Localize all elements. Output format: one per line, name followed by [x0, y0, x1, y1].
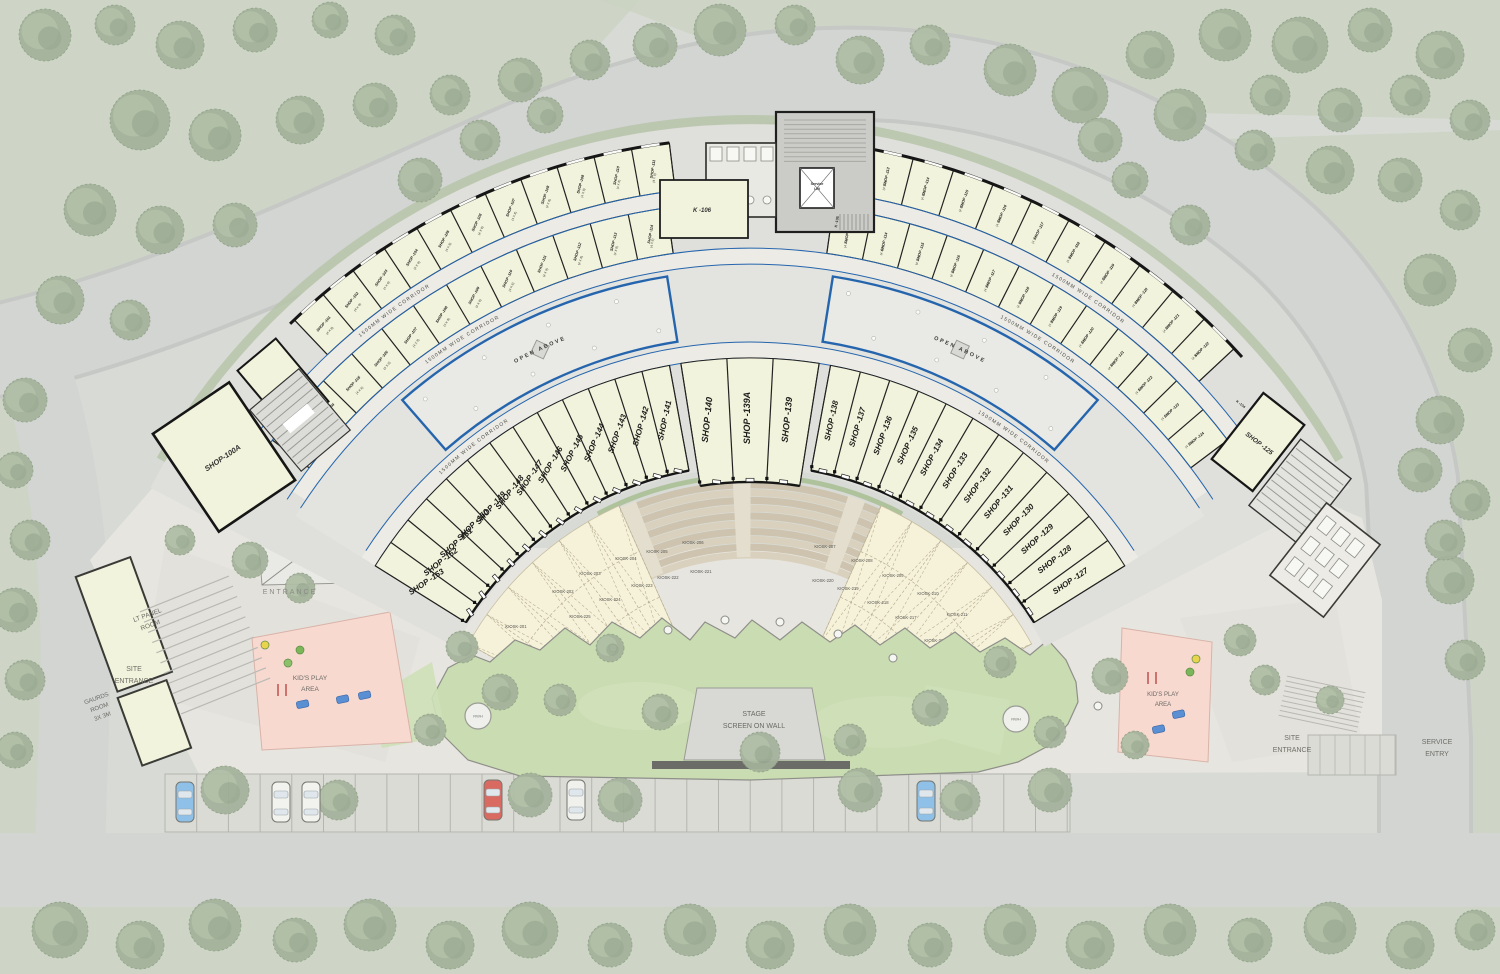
site-entrance-label: ENTRANCE	[115, 678, 154, 685]
kiosk-label: KIOSK-205	[646, 549, 668, 554]
tree-icon	[460, 120, 500, 160]
tree-icon	[984, 904, 1036, 956]
tree-icon	[353, 83, 397, 127]
column-mark	[993, 563, 996, 566]
tree-icon	[32, 902, 88, 958]
tree-canopy	[683, 921, 706, 944]
court-furniture	[994, 388, 998, 392]
tree-icon	[1386, 921, 1434, 969]
tree-icon	[1028, 768, 1072, 812]
car-icon	[176, 782, 194, 822]
tree-canopy	[585, 53, 603, 71]
tree-icon	[1416, 396, 1464, 444]
plaza-light	[889, 654, 897, 662]
kids-play-label: AREA	[301, 686, 319, 693]
tree-canopy	[363, 916, 386, 939]
tree-canopy	[249, 23, 269, 43]
column-mark	[698, 480, 701, 483]
tree-icon	[5, 660, 45, 700]
site-plan-drawing: KIOSK-201KIOSK-202KIOSK-203KIOSK-204KIOS…	[0, 0, 1500, 974]
kiosk-label: KIOSK-218	[867, 600, 889, 605]
stage-label: SCREEN ON WALL	[723, 723, 785, 730]
tree-icon	[213, 203, 257, 247]
tree-canopy	[1423, 271, 1446, 294]
car-body	[917, 781, 935, 821]
tree-icon	[426, 921, 474, 969]
tree-icon	[233, 8, 277, 52]
column-mark	[461, 619, 464, 622]
tree-icon	[1306, 146, 1354, 194]
kiosk-label: KIOSK-209	[882, 573, 904, 578]
tree-canopy	[764, 937, 786, 959]
tree-icon	[912, 690, 948, 726]
tree-canopy	[1405, 88, 1423, 106]
plaza-light	[721, 616, 729, 624]
tree-icon	[1112, 162, 1148, 198]
toilet-stall	[727, 147, 739, 161]
tree-icon	[694, 4, 746, 56]
tree-canopy	[1125, 174, 1141, 190]
tree-icon	[375, 15, 415, 55]
play-equipment-icon	[261, 641, 269, 649]
tree-canopy	[110, 18, 128, 36]
tree-canopy	[1044, 783, 1064, 803]
tree-canopy	[444, 937, 466, 959]
tree-canopy	[1404, 937, 1426, 959]
tree-icon	[746, 921, 794, 969]
plaza-light	[776, 618, 784, 626]
column-mark	[919, 506, 922, 509]
car-body	[302, 782, 320, 822]
tree-canopy	[134, 937, 156, 959]
car-body	[484, 780, 502, 820]
tree-canopy	[1236, 635, 1250, 649]
tree-icon	[1235, 130, 1275, 170]
court-furniture	[592, 346, 596, 350]
tree-canopy	[1434, 412, 1456, 434]
tree-canopy	[843, 921, 866, 944]
kiosk-label: KIOSK-208	[851, 558, 873, 563]
court-furniture	[482, 356, 486, 360]
tree-canopy	[208, 126, 231, 149]
tree-canopy	[1218, 26, 1241, 49]
tree-canopy	[522, 921, 547, 946]
car-rear-window	[919, 808, 933, 814]
tree-icon	[984, 44, 1036, 96]
play-equipment-icon	[296, 646, 304, 654]
car-rear-window	[178, 809, 192, 815]
tree-canopy	[52, 921, 77, 946]
car-icon	[567, 780, 585, 820]
kiosk-label: KIOSK-201	[505, 624, 527, 629]
tree-canopy	[1094, 133, 1114, 153]
column-mark	[624, 483, 627, 486]
door-mark	[712, 480, 720, 484]
tree-canopy	[390, 28, 408, 46]
car-windshield	[178, 791, 192, 798]
tree-icon	[1034, 716, 1066, 748]
kiosk-label: KIOSK-219	[837, 586, 859, 591]
tree-canopy	[606, 643, 619, 656]
tree-canopy	[1364, 23, 1384, 43]
column-mark	[549, 524, 552, 527]
tree-canopy	[604, 938, 624, 958]
tree-icon	[838, 768, 882, 812]
tree-canopy	[1414, 463, 1434, 483]
tree-canopy	[924, 938, 944, 958]
tree-canopy	[19, 393, 39, 413]
tree-icon	[544, 684, 576, 716]
court-furniture	[657, 329, 661, 333]
tree-canopy	[649, 38, 669, 58]
tree-icon	[824, 904, 876, 956]
car-windshield	[486, 789, 500, 796]
tree-icon	[664, 904, 716, 956]
tree-canopy	[333, 793, 351, 811]
play-equipment-icon	[1186, 668, 1194, 676]
tree-canopy	[154, 222, 176, 244]
tree-canopy	[1163, 921, 1186, 944]
tree-canopy	[925, 38, 943, 56]
tree-canopy	[325, 14, 341, 30]
kiosk-label: KIOSK-210	[917, 591, 939, 596]
column-mark	[1008, 581, 1011, 584]
tree-canopy	[219, 782, 241, 804]
tree-canopy	[713, 21, 736, 44]
tree-icon	[508, 773, 552, 817]
tree-canopy	[445, 88, 463, 106]
column-mark	[645, 476, 648, 479]
tree-icon	[318, 780, 358, 820]
column-mark	[899, 495, 902, 498]
car-body	[176, 782, 194, 822]
tree-canopy	[1394, 173, 1414, 193]
tree-canopy	[25, 533, 43, 551]
entrance-label: ENTRANCE	[263, 589, 318, 596]
play-equipment-icon	[284, 659, 292, 667]
tree-canopy	[289, 933, 309, 953]
tree-canopy	[1003, 921, 1026, 944]
tree-canopy	[1334, 103, 1354, 123]
column-mark	[1023, 599, 1026, 602]
tree-icon	[95, 5, 135, 45]
car-windshield	[304, 791, 318, 798]
court-furniture	[531, 372, 535, 376]
tree-canopy	[556, 695, 570, 709]
court-furniture	[872, 336, 876, 340]
car-rear-window	[274, 809, 288, 815]
kiosk-label: KIOSK-220	[812, 578, 834, 583]
kiosk-label: KIOSK-203	[579, 571, 601, 576]
tree-canopy	[229, 218, 249, 238]
tree-icon	[588, 923, 632, 967]
column-mark	[855, 477, 858, 480]
tree-canopy	[1173, 106, 1196, 129]
tree-icon	[1416, 31, 1464, 79]
tree-icon	[1316, 686, 1344, 714]
tree-icon	[1455, 910, 1495, 950]
kids-play-label: KID'S PLAY	[293, 675, 328, 682]
court-furniture	[474, 406, 478, 410]
kiosk-label: KIOSK-202	[552, 589, 574, 594]
tree-canopy	[176, 535, 190, 549]
tree-canopy	[83, 201, 106, 224]
tree-icon	[1170, 205, 1210, 245]
tree-icon	[570, 40, 610, 80]
rwh-label: RWH	[1011, 717, 1021, 722]
tree-icon	[1228, 918, 1272, 962]
site-plan-page: KIOSK-201KIOSK-202KIOSK-203KIOSK-204KIOS…	[0, 0, 1500, 974]
car-body	[272, 782, 290, 822]
court-furniture	[546, 323, 550, 327]
tree-canopy	[1455, 203, 1473, 221]
tree-icon	[1154, 89, 1206, 141]
tree-icon	[1052, 67, 1108, 123]
tree-canopy	[495, 686, 511, 702]
plaza-light	[664, 626, 672, 634]
tree-icon	[1304, 902, 1356, 954]
tree-canopy	[1185, 218, 1203, 236]
tree-icon	[482, 674, 518, 710]
tree-icon	[1445, 640, 1485, 680]
tree-icon	[1078, 118, 1122, 162]
door-mark	[746, 478, 754, 481]
tree-icon	[940, 780, 980, 820]
tree-icon	[598, 778, 642, 822]
tree-canopy	[1084, 937, 1106, 959]
court-furniture	[1044, 375, 1048, 379]
tree-canopy	[1470, 923, 1488, 941]
tree-canopy	[1465, 113, 1483, 131]
tree-canopy	[1460, 653, 1478, 671]
tree-canopy	[10, 744, 26, 760]
car-windshield	[919, 790, 933, 797]
car-icon	[917, 781, 935, 821]
parking-lot-right	[1308, 735, 1396, 775]
tree-icon	[273, 918, 317, 962]
tree-canopy	[1072, 86, 1097, 111]
toilet-stall	[744, 147, 756, 161]
car-icon	[272, 782, 290, 822]
tree-icon	[165, 525, 195, 555]
court-furniture	[982, 338, 986, 342]
tree-canopy	[1105, 670, 1121, 686]
kiosk-label: KIOSK-211	[947, 612, 969, 617]
tree-icon	[189, 109, 241, 161]
car-rear-window	[304, 809, 318, 815]
tree-canopy	[1324, 162, 1346, 184]
car-icon	[484, 780, 502, 820]
tree-icon	[642, 694, 678, 730]
site-entrance-label: ENTRANCE	[1273, 747, 1312, 754]
column-mark	[765, 477, 768, 480]
bottom-road	[0, 833, 1500, 907]
tree-icon	[189, 899, 241, 951]
toilet-stall	[710, 147, 722, 161]
lawn-mound	[578, 682, 702, 730]
tree-icon	[19, 9, 71, 61]
tree-icon	[285, 573, 315, 603]
tree-icon	[276, 96, 324, 144]
tree-icon	[498, 58, 542, 102]
tree-icon	[502, 902, 558, 958]
tree-icon	[1318, 88, 1362, 132]
tree-canopy	[369, 98, 389, 118]
car-windshield	[274, 791, 288, 798]
tree-icon	[1092, 658, 1128, 694]
column-mark	[877, 485, 880, 488]
tree-icon	[1450, 100, 1490, 140]
tree-icon	[1126, 31, 1174, 79]
tree-canopy	[1444, 572, 1466, 594]
car-icon	[302, 782, 320, 822]
tree-icon	[633, 23, 677, 67]
column-mark	[810, 465, 813, 468]
tree-canopy	[1440, 533, 1458, 551]
tree-icon	[1272, 17, 1328, 73]
tree-canopy	[208, 916, 231, 939]
tree-canopy	[854, 52, 876, 74]
tree-icon	[775, 5, 815, 45]
tree-icon	[64, 184, 116, 236]
court-furniture	[935, 358, 939, 362]
tree-canopy	[854, 783, 874, 803]
tree-canopy	[414, 173, 434, 193]
tree-icon	[232, 542, 268, 578]
tree-canopy	[38, 26, 61, 49]
tree-icon	[110, 300, 150, 340]
tree-icon	[1199, 9, 1251, 61]
tree-canopy	[1244, 933, 1264, 953]
tree-icon	[527, 97, 563, 133]
tree-canopy	[514, 73, 534, 93]
tree-icon	[1224, 624, 1256, 656]
column-mark	[567, 512, 570, 515]
tree-canopy	[125, 313, 143, 331]
stage-label: STAGE	[742, 711, 766, 718]
service-lift-label: Lift	[814, 187, 820, 191]
tree-icon	[1398, 448, 1442, 492]
tree-canopy	[1465, 493, 1483, 511]
tree-icon	[344, 899, 396, 951]
tree-icon	[1448, 328, 1492, 372]
service-entry-label: SERVICE	[1422, 739, 1453, 746]
tree-canopy	[1250, 143, 1268, 161]
tree-icon	[1121, 731, 1149, 759]
column-mark	[833, 470, 836, 473]
tree-canopy	[1131, 740, 1144, 753]
tree-icon	[116, 921, 164, 969]
column-mark	[473, 601, 476, 604]
column-mark	[585, 501, 588, 504]
service-lift-label: Service	[811, 182, 824, 186]
toilet-stall	[761, 147, 773, 161]
tree-canopy	[614, 793, 634, 813]
tree-icon	[1066, 921, 1114, 969]
tree-icon	[1348, 8, 1392, 52]
tree-canopy	[1326, 695, 1339, 708]
tree-icon	[110, 90, 170, 150]
column-mark	[939, 518, 942, 521]
kiosk-label: KIOSK-223	[631, 583, 653, 588]
tree-canopy	[1464, 343, 1484, 363]
tree-canopy	[1292, 36, 1317, 61]
column-mark	[666, 470, 669, 473]
kiosk-label: KIOSK-207	[814, 544, 836, 549]
court-furniture	[1049, 427, 1053, 431]
tree-canopy	[955, 793, 973, 811]
tree-icon	[156, 21, 204, 69]
column-mark	[605, 491, 608, 494]
tree-icon	[1390, 75, 1430, 115]
tree-canopy	[755, 745, 773, 763]
tree-canopy	[996, 657, 1010, 671]
car-rear-window	[486, 807, 500, 813]
tree-canopy	[9, 603, 29, 623]
site-entrance-label: SITE	[1284, 735, 1300, 742]
rwh-label: RWH	[473, 714, 483, 719]
tree-icon	[910, 25, 950, 65]
tree-canopy	[245, 554, 261, 570]
car-rear-window	[569, 807, 583, 813]
tree-canopy	[475, 133, 493, 151]
column-mark	[486, 584, 489, 587]
tree-canopy	[458, 642, 472, 656]
plaza-light	[834, 630, 842, 638]
column-mark	[958, 532, 961, 535]
plaza-light	[1094, 702, 1102, 710]
tree-icon	[596, 634, 624, 662]
kiosk-label: KIOSK-204	[615, 556, 637, 561]
court-furniture	[423, 397, 427, 401]
column-mark	[976, 547, 979, 550]
kiosk-label: KIOSK-224	[599, 597, 621, 602]
tree-canopy	[846, 735, 860, 749]
kiosk-label: KIOSK-221	[690, 569, 712, 574]
tree-icon	[3, 378, 47, 422]
tree-canopy	[174, 37, 196, 59]
tree-canopy	[540, 109, 556, 125]
tree-icon	[1450, 480, 1490, 520]
column-mark	[516, 552, 519, 555]
kiosk-label: KIOSK-222	[657, 575, 679, 580]
car-windshield	[569, 789, 583, 796]
door-mark	[779, 480, 787, 484]
tree-icon	[398, 158, 442, 202]
court-furniture	[614, 300, 618, 304]
tree-canopy	[1265, 88, 1283, 106]
tree-canopy	[790, 18, 808, 36]
service-entry-label: ENTRY	[1425, 751, 1449, 758]
kids-play-label: AREA	[1155, 702, 1171, 708]
kids-play-label: KID'S PLAY	[1147, 692, 1179, 698]
tree-icon	[1425, 520, 1465, 560]
site-entrance-label: SITE	[126, 666, 142, 673]
tree-canopy	[1323, 919, 1346, 942]
column-mark	[532, 538, 535, 541]
tree-icon	[446, 631, 478, 663]
tree-icon	[1404, 254, 1456, 306]
tree-icon	[430, 75, 470, 115]
tree-canopy	[1144, 47, 1166, 69]
tree-canopy	[1003, 61, 1026, 84]
tree-icon	[1250, 665, 1280, 695]
tree-canopy	[1046, 727, 1060, 741]
tree-icon	[984, 646, 1016, 678]
tree-icon	[740, 732, 780, 772]
kiosk-label: KIOSK-206	[682, 540, 704, 545]
tree-canopy	[294, 112, 316, 134]
